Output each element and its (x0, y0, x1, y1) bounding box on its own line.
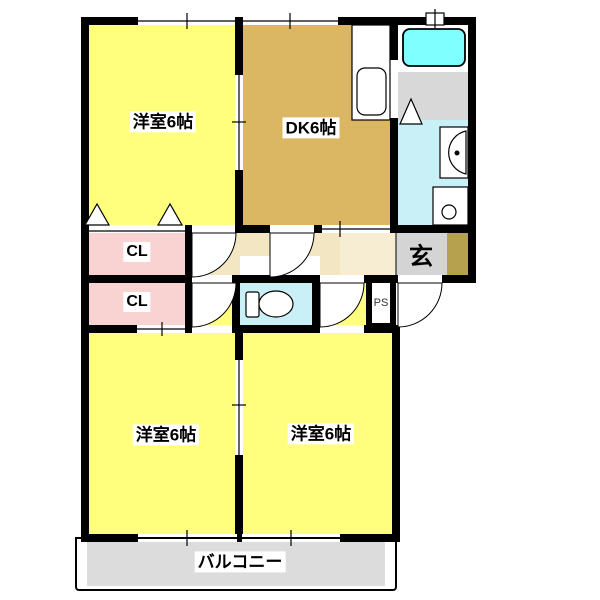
wall-mid1-b (185, 225, 192, 233)
shoe-cabinet (447, 233, 468, 275)
wall-bedroomTL-dk-b (235, 170, 243, 233)
wall-mid1-e (390, 225, 476, 233)
wall-bedrooms-divider-b (235, 455, 243, 534)
wall-mid1-a (81, 225, 89, 233)
wall-dk-wet-b (390, 118, 398, 233)
wall-bottom-2 (237, 534, 242, 542)
label-balcony: バルコニー (195, 551, 286, 572)
toilet-floor (240, 283, 312, 325)
floorplan-canvas: 洋室6帖 DK6帖 CL CL 玄 PS 洋室6帖 洋室6帖 バルコニー (0, 0, 600, 600)
wall-top-3 (338, 17, 476, 25)
label-closet-top: CL (123, 242, 150, 262)
wall-right-lower (392, 325, 400, 542)
wall-roomtop-a (81, 325, 137, 333)
room-washroom (398, 120, 468, 225)
label-entrance: 玄 (409, 237, 433, 272)
label-closet-bottom: CL (123, 292, 150, 312)
door-arc-front-door (398, 283, 442, 327)
label-dining-kitchen: DK6帖 (282, 117, 339, 138)
wall-right-upper (468, 17, 476, 283)
wall-mid1-d (314, 225, 322, 233)
wall-dk-wet-a (390, 17, 398, 60)
alcove-bottom-right (320, 283, 368, 325)
room-utility (398, 72, 468, 120)
wall-bottom-1 (81, 534, 138, 542)
label-bedroom-bottom-right: 洋室6帖 (288, 423, 354, 444)
hallway-light-section (340, 233, 398, 275)
toilet-room (232, 275, 320, 333)
toilet-vestibule (240, 256, 320, 275)
wall-mid2-a (81, 275, 192, 283)
label-pipe-shaft: PS (374, 297, 389, 309)
wall-mid2-d (442, 275, 476, 283)
wall-bedroomTL-dk-a (235, 17, 243, 75)
label-bedroom-bottom-left: 洋室6帖 (133, 424, 199, 445)
wall-closet-right (185, 233, 192, 333)
wall-bottom-3 (340, 534, 400, 542)
wall-bedrooms-divider-a (235, 333, 243, 360)
wall-top-1 (81, 17, 138, 25)
room-bathroom (398, 25, 468, 72)
label-bedroom-top-left: 洋室6帖 (130, 111, 196, 132)
